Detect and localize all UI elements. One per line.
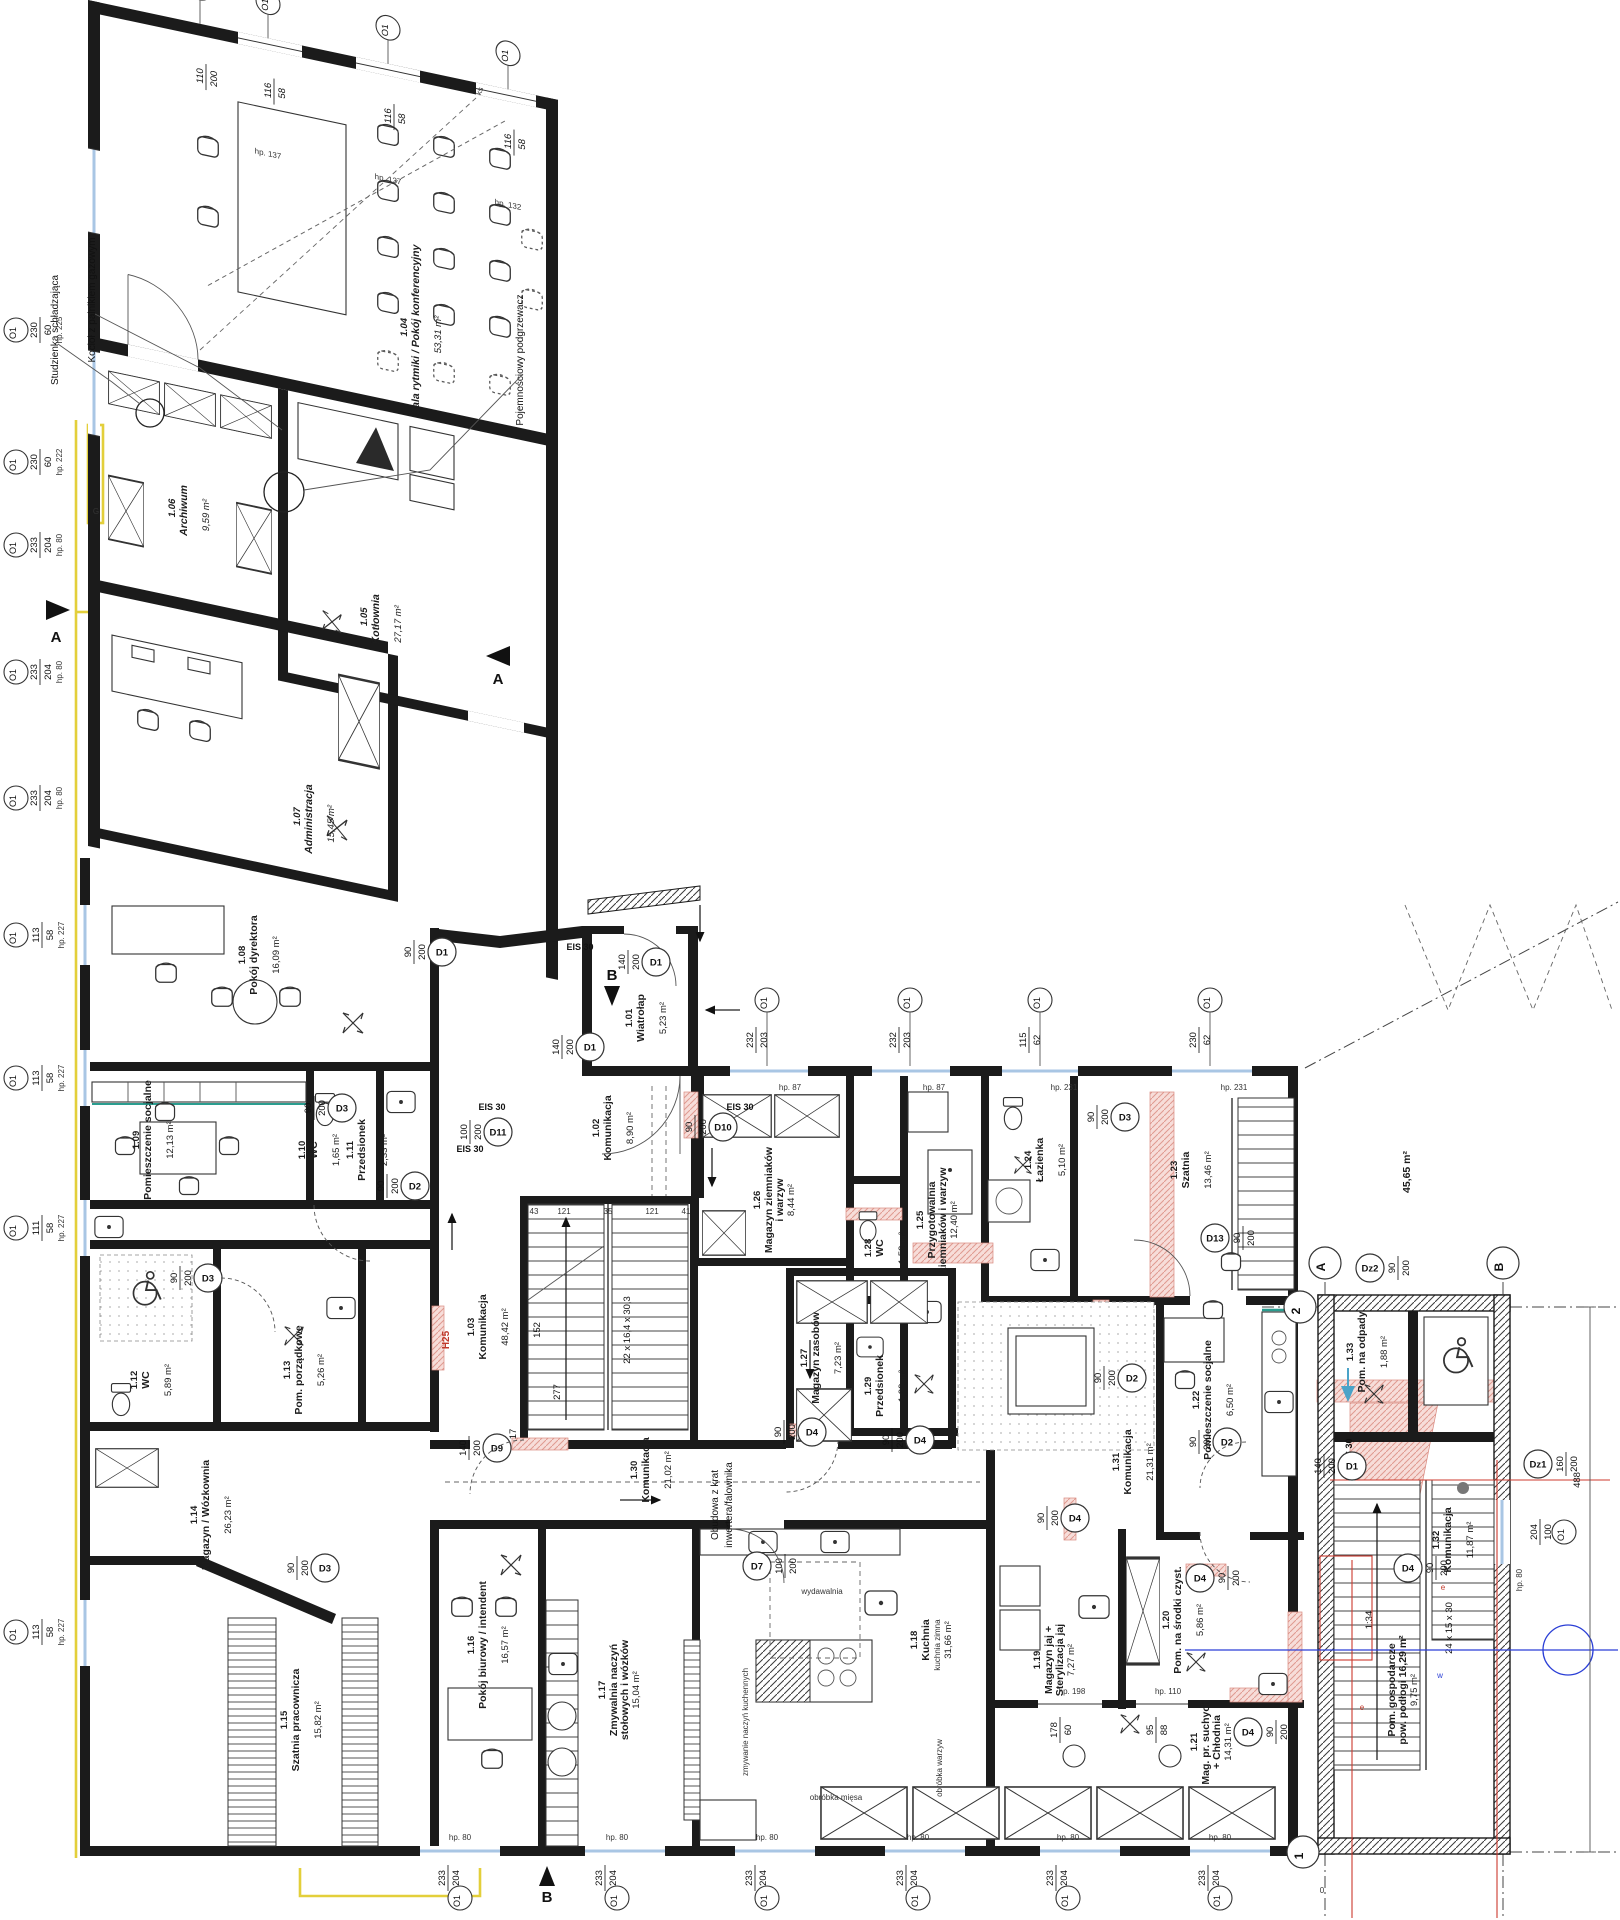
svg-text:B: B <box>607 967 618 984</box>
window-dimension: O1204100hp. 80 <box>1515 1519 1576 1591</box>
area-45-65: 45,65 m² <box>1401 1150 1413 1193</box>
svg-text:200: 200 <box>209 70 220 88</box>
svg-text:113: 113 <box>31 1624 42 1639</box>
svg-text:1.18: 1.18 <box>909 1631 920 1650</box>
svg-text:1,65 m²: 1,65 m² <box>331 1134 342 1166</box>
svg-text:204: 204 <box>43 790 54 806</box>
svg-text:Łazienka: Łazienka <box>1034 1138 1046 1183</box>
svg-text:e: e <box>1360 1703 1365 1712</box>
svg-text:200: 200 <box>788 1558 799 1574</box>
door-bubble: D390200 <box>1086 1103 1139 1131</box>
svg-text:Komunikacja: Komunikacja <box>1122 1429 1134 1495</box>
svg-text:D11: D11 <box>490 1128 508 1139</box>
svg-text:O1: O1 <box>8 795 18 807</box>
svg-text:111: 111 <box>31 1221 42 1235</box>
svg-text:i warzyw: i warzyw <box>774 1178 786 1222</box>
svg-text:1,90 m²: 1,90 m² <box>897 1370 908 1402</box>
svg-text:EIS 30: EIS 30 <box>566 942 593 952</box>
svg-text:1.32: 1.32 <box>1431 1531 1442 1550</box>
svg-text:5,26 m²: 5,26 m² <box>316 1354 327 1386</box>
svg-text:O1: O1 <box>759 1895 769 1907</box>
svg-text:O1: O1 <box>1060 1895 1070 1907</box>
svg-text:1.25: 1.25 <box>915 1210 926 1229</box>
svg-text:O1: O1 <box>759 997 769 1009</box>
svg-text:O1: O1 <box>8 1075 18 1087</box>
svg-text:11,87 m²: 11,87 m² <box>1465 1522 1476 1559</box>
window-dimension: O1233204hp. 80 <box>4 532 64 558</box>
svg-text:O1: O1 <box>609 1895 619 1907</box>
svg-text:Komunikacja: Komunikacja <box>640 1437 652 1503</box>
svg-text:1.08: 1.08 <box>237 946 248 965</box>
svg-text:A: A <box>493 671 504 688</box>
svg-text:1,53 m²: 1,53 m² <box>897 1232 908 1264</box>
svg-text:17: 17 <box>508 1429 519 1440</box>
svg-text:100: 100 <box>1543 1524 1554 1540</box>
svg-text:0: 0 <box>1320 1886 1325 1895</box>
svg-text:D2: D2 <box>1126 1374 1138 1385</box>
svg-text:D1: D1 <box>1346 1462 1359 1473</box>
svg-text:62: 62 <box>1032 1035 1043 1046</box>
svg-text:Administracja: Administracja <box>303 783 315 855</box>
svg-text:200: 200 <box>300 1560 311 1576</box>
svg-text:5,89 m²: 5,89 m² <box>163 1364 174 1396</box>
window-dimension: O111358hp. 227 <box>4 921 66 948</box>
svg-text:D4: D4 <box>1242 1728 1255 1739</box>
annotation-podgrzewacz: Pojemnościowy podgrzewacz <box>515 294 526 425</box>
svg-text:90: 90 <box>1232 1233 1243 1244</box>
svg-text:hp. 198: hp. 198 <box>1059 1687 1086 1696</box>
svg-text:200: 200 <box>1231 1570 1242 1586</box>
svg-text:1:34: 1:34 <box>1364 1611 1375 1630</box>
svg-text:hp. 87: hp. 87 <box>923 1083 946 1092</box>
svg-text:90: 90 <box>1036 1513 1047 1524</box>
window-dimension: O123060hp. 222 <box>4 448 64 475</box>
svg-text:233: 233 <box>29 790 40 806</box>
svg-text:90: 90 <box>403 947 414 958</box>
svg-text:Sterylizacja jaj: Sterylizacja jaj <box>1054 1624 1066 1696</box>
svg-text:1.31: 1.31 <box>1111 1452 1122 1471</box>
svg-text:1.14: 1.14 <box>189 1505 200 1524</box>
svg-text:1.28: 1.28 <box>863 1239 874 1258</box>
svg-text:5,10 m²: 5,10 m² <box>1057 1144 1068 1176</box>
window-dimension: O111158hp. 227 <box>4 1214 66 1241</box>
svg-text:1.11: 1.11 <box>345 1140 356 1159</box>
svg-text:200: 200 <box>1107 1370 1118 1386</box>
svg-text:90: 90 <box>1086 1112 1097 1123</box>
svg-text:90: 90 <box>169 1273 180 1284</box>
svg-text:58: 58 <box>397 112 408 125</box>
svg-text:Przedsionek: Przedsionek <box>874 1355 886 1417</box>
svg-text:230: 230 <box>29 322 40 338</box>
svg-text:hp. 231: hp. 231 <box>1051 1083 1078 1092</box>
svg-text:inwertera/falownika: inwertera/falownika <box>724 1462 735 1548</box>
svg-text:O1: O1 <box>452 1895 462 1907</box>
window-dimension: 17860hp. 198 <box>1049 1687 1086 1767</box>
svg-text:8,90 m²: 8,90 m² <box>625 1112 636 1144</box>
svg-text:Pom. porządkowe: Pom. porządkowe <box>293 1325 305 1414</box>
svg-text:1.10: 1.10 <box>297 1141 308 1160</box>
svg-text:A: A <box>51 629 62 646</box>
window-dimension: O111562hp. 231 <box>1018 988 1078 1092</box>
svg-text:Magazyn zasobów: Magazyn zasobów <box>810 1311 822 1403</box>
room-label: 1.07Administracja 15,45 m² <box>292 781 337 860</box>
svg-text:16,57 m²: 16,57 m² <box>500 1626 511 1664</box>
svg-text:wydawalnia: wydawalnia <box>800 1587 843 1596</box>
window-dimension: O1233204hp. 80 <box>744 1833 779 1910</box>
svg-text:58: 58 <box>45 1223 56 1234</box>
svg-text:26,23 m²: 26,23 m² <box>223 1496 234 1534</box>
svg-text:e: e <box>1441 1583 1446 1592</box>
window-dimension: O1233204hp. 80 <box>437 1833 472 1910</box>
door-bubble: D490200 <box>1036 1504 1089 1532</box>
svg-text:90: 90 <box>684 1122 695 1133</box>
svg-text:5,23 m²: 5,23 m² <box>658 1002 669 1034</box>
svg-text:200: 200 <box>317 1100 328 1116</box>
dimension-488: 488 <box>1572 1472 1583 1488</box>
svg-text:204: 204 <box>43 537 54 553</box>
svg-text:233: 233 <box>1197 1870 1208 1886</box>
door-bubble: D290200 <box>1188 1428 1241 1456</box>
svg-text:233: 233 <box>29 664 40 680</box>
svg-text:200: 200 <box>698 1119 709 1135</box>
svg-text:200: 200 <box>1202 1434 1213 1450</box>
svg-text:hp. 227: hp. 227 <box>57 1214 66 1241</box>
svg-text:203: 203 <box>902 1032 913 1048</box>
svg-text:90: 90 <box>303 1103 314 1114</box>
svg-text:hp. 80: hp. 80 <box>1209 1833 1232 1842</box>
svg-text:90: 90 <box>773 1427 784 1438</box>
svg-text:O1: O1 <box>1556 1529 1566 1541</box>
svg-text:1.19: 1.19 <box>1032 1651 1043 1670</box>
window-dimension: O1 11658 hp. 137 <box>375 13 408 188</box>
svg-text:O1: O1 <box>380 23 390 37</box>
svg-text:O1: O1 <box>500 49 510 63</box>
svg-text:178: 178 <box>1049 1722 1060 1738</box>
svg-text:pow. podłogi 16,29 m²: pow. podłogi 16,29 m² <box>1397 1635 1409 1745</box>
svg-text:140: 140 <box>1313 1458 1324 1474</box>
svg-text:233: 233 <box>1045 1870 1056 1886</box>
room-label: 1.06Archiwum 9,59 m² <box>167 481 212 541</box>
svg-text:H25: H25 <box>441 1330 452 1349</box>
svg-text:Kotłownia: Kotłownia <box>370 593 382 646</box>
svg-text:1.33: 1.33 <box>1345 1343 1356 1362</box>
svg-text:1.05: 1.05 <box>359 606 370 627</box>
window-dimension: O1232203hp. 87 <box>888 988 946 1092</box>
svg-text:D4: D4 <box>1069 1514 1082 1525</box>
window-dimension: O111358hp. 227 <box>4 1064 66 1091</box>
svg-text:hp. 80: hp. 80 <box>756 1833 779 1842</box>
svg-text:233: 233 <box>594 1870 605 1886</box>
svg-text:2,33 m²: 2,33 m² <box>379 1134 390 1166</box>
svg-text:233: 233 <box>744 1870 755 1886</box>
door-bubble: D7100200 <box>743 1552 799 1580</box>
svg-text:EIS 30: EIS 30 <box>456 1144 483 1154</box>
svg-text:204: 204 <box>1211 1870 1222 1886</box>
door-bubble: D390200 <box>286 1554 339 1582</box>
svg-text:Pomieszczenie socjalne: Pomieszczenie socjalne <box>142 1080 154 1200</box>
svg-text:7,27 m²: 7,27 m² <box>1066 1644 1077 1676</box>
door-bubble: Dz290200 <box>1356 1254 1412 1282</box>
svg-text:Wiatrołap: Wiatrołap <box>635 994 647 1042</box>
annex-stair-spec: 24 x 15 x 30 <box>1444 1602 1455 1654</box>
svg-text:Sala rytmiki / Pokój konferenc: Sala rytmiki / Pokój konferencyjny <box>410 243 422 416</box>
svg-text:1.24: 1.24 <box>1023 1150 1034 1169</box>
svg-text:WC: WC <box>308 1141 320 1159</box>
svg-text:90: 90 <box>286 1563 297 1574</box>
svg-text:232: 232 <box>745 1032 756 1048</box>
svg-text:WC: WC <box>874 1239 886 1257</box>
svg-text:60: 60 <box>43 457 54 468</box>
svg-text:G: G <box>93 507 99 516</box>
svg-text:200: 200 <box>183 1270 194 1286</box>
svg-text:58: 58 <box>45 930 56 941</box>
svg-text:200: 200 <box>787 1424 798 1440</box>
svg-text:D4: D4 <box>806 1428 819 1439</box>
svg-text:53,31 m²: 53,31 m² <box>433 314 444 355</box>
svg-text:D4: D4 <box>1194 1574 1207 1585</box>
door-bubble: D190200 <box>403 938 456 966</box>
svg-text:kuchnia zimna: kuchnia zimna <box>933 1619 942 1671</box>
svg-text:230: 230 <box>29 454 40 470</box>
svg-text:D4: D4 <box>914 1436 927 1447</box>
svg-text:277: 277 <box>552 1384 563 1400</box>
svg-text:hp. 80: hp. 80 <box>1515 1568 1524 1591</box>
svg-text:1.07: 1.07 <box>292 806 303 827</box>
door-bubble: D11100200 <box>459 1118 512 1146</box>
svg-text:95: 95 <box>1145 1725 1156 1736</box>
svg-text:58: 58 <box>517 138 528 151</box>
svg-text:D3: D3 <box>202 1274 214 1285</box>
svg-text:hp. 80: hp. 80 <box>907 1833 930 1842</box>
svg-text:hp. 80: hp. 80 <box>1057 1833 1080 1842</box>
svg-text:90: 90 <box>1387 1263 1398 1274</box>
svg-text:233: 233 <box>895 1870 906 1886</box>
svg-text:D4: D4 <box>1402 1564 1415 1575</box>
svg-text:D10: D10 <box>714 1123 731 1134</box>
svg-text:58: 58 <box>277 87 288 100</box>
svg-text:200: 200 <box>1100 1109 1111 1125</box>
svg-text:hp. 225: hp. 225 <box>55 316 64 343</box>
svg-text:Szatnia: Szatnia <box>1180 1151 1192 1188</box>
svg-text:D3: D3 <box>1119 1113 1131 1124</box>
svg-text:200: 200 <box>1439 1560 1450 1576</box>
svg-text:hp. 227: hp. 227 <box>57 1618 66 1645</box>
svg-text:hp. 222: hp. 222 <box>55 448 64 475</box>
window-dimension: O1233204hp. 80 <box>4 659 64 685</box>
svg-text:200: 200 <box>1050 1510 1061 1526</box>
svg-text:12,40 m²: 12,40 m² <box>949 1201 960 1239</box>
svg-text:Pokój biurowy / intendent: Pokój biurowy / intendent <box>477 1581 489 1709</box>
window-dimension: O1233204hp. 80 <box>4 785 64 811</box>
svg-text:hp. 231: hp. 231 <box>1221 1083 1248 1092</box>
svg-text:48,42 m²: 48,42 m² <box>500 1308 511 1346</box>
svg-text:90: 90 <box>1425 1563 1436 1574</box>
svg-text:stołowych i wózków: stołowych i wózków <box>619 1639 631 1740</box>
svg-text:1.09: 1.09 <box>131 1131 142 1150</box>
floor-plan-canvas: 1.04Sala rytmiki / Pokój konferencyjny 5… <box>0 0 1620 1920</box>
svg-text:115: 115 <box>1018 1032 1029 1047</box>
svg-text:113: 113 <box>31 927 42 942</box>
svg-text:5,86 m²: 5,86 m² <box>1195 1604 1206 1636</box>
svg-text:15,04 m²: 15,04 m² <box>631 1671 642 1709</box>
svg-text:160: 160 <box>1555 1456 1566 1472</box>
svg-text:15,82 m²: 15,82 m² <box>313 1701 324 1739</box>
floor-plan-svg: 1.04Sala rytmiki / Pokój konferencyjny 5… <box>0 0 1620 1920</box>
svg-text:58: 58 <box>45 1073 56 1084</box>
svg-text:152: 152 <box>532 1322 543 1338</box>
svg-text:1.15: 1.15 <box>279 1710 290 1729</box>
svg-text:90: 90 <box>1093 1373 1104 1384</box>
svg-text:41: 41 <box>682 1207 691 1216</box>
svg-text:D1: D1 <box>436 948 449 959</box>
svg-text:O1: O1 <box>260 0 270 12</box>
svg-text:+ Chłodnia: + Chłodnia <box>1211 1715 1223 1769</box>
svg-text:O1: O1 <box>1032 997 1042 1009</box>
admin-furniture <box>112 627 380 847</box>
svg-text:15,45 m²: 15,45 m² <box>326 803 337 844</box>
svg-text:1.16: 1.16 <box>466 1636 477 1655</box>
window-dimension: O111358hp. 227 <box>4 1618 66 1645</box>
svg-text:O1: O1 <box>8 1629 18 1641</box>
svg-text:204: 204 <box>1059 1870 1070 1886</box>
svg-text:62: 62 <box>1202 1035 1213 1046</box>
window-dimension: O1233204hp. 80 <box>1045 1833 1080 1910</box>
svg-text:204: 204 <box>451 1870 462 1886</box>
svg-text:1.30: 1.30 <box>629 1461 640 1480</box>
svg-text:B: B <box>1492 1262 1506 1271</box>
grid-lines <box>1262 902 1618 1918</box>
svg-text:D2: D2 <box>409 1182 421 1193</box>
svg-text:7,23 m²: 7,23 m² <box>833 1342 844 1374</box>
svg-text:43: 43 <box>530 1207 539 1216</box>
svg-text:Magazyn / Wózkownia: Magazyn / Wózkownia <box>200 1460 212 1570</box>
svg-text:hp. 80: hp. 80 <box>606 1833 629 1842</box>
svg-text:90: 90 <box>881 1435 892 1446</box>
svg-text:hp. 80: hp. 80 <box>449 1833 472 1842</box>
wing-group: 1.04Sala rytmiki / Pokój konferencyjny 5… <box>88 0 558 980</box>
svg-text:200: 200 <box>473 1124 484 1140</box>
svg-text:hp. 87: hp. 87 <box>779 1083 802 1092</box>
svg-text:204: 204 <box>909 1870 920 1886</box>
svg-text:9,59 m²: 9,59 m² <box>201 497 212 532</box>
svg-text:204: 204 <box>608 1870 619 1886</box>
window-dimension: O1 11658 hp. 132 <box>495 38 528 213</box>
svg-text:zmywanie naczyń kuchennych: zmywanie naczyń kuchennych <box>741 1668 750 1776</box>
svg-text:hp. 110: hp. 110 <box>1155 1687 1182 1696</box>
svg-text:90: 90 <box>1265 1727 1276 1738</box>
svg-text:233: 233 <box>437 1870 448 1886</box>
svg-text:200: 200 <box>631 954 642 970</box>
svg-text:O1: O1 <box>8 542 18 554</box>
svg-text:1.26: 1.26 <box>752 1191 763 1210</box>
svg-text:Pom. na środki czyst.: Pom. na środki czyst. <box>1172 1566 1184 1673</box>
svg-text:110: 110 <box>195 67 206 84</box>
svg-text:200: 200 <box>1246 1230 1257 1246</box>
svg-text:200: 200 <box>1327 1458 1338 1474</box>
svg-text:16,09 m²: 16,09 m² <box>271 936 282 974</box>
door-dimension: O1 110200 <box>188 0 220 93</box>
svg-text:1.12: 1.12 <box>129 1371 140 1390</box>
svg-text:O1: O1 <box>8 1225 18 1237</box>
svg-text:60: 60 <box>1063 1725 1074 1736</box>
main-staircase: 43 121 35 121 41 152 277 17 22 x 16,4 x … <box>508 1086 691 1439</box>
svg-text:230: 230 <box>1188 1032 1199 1048</box>
svg-text:204: 204 <box>758 1870 769 1886</box>
svg-text:200: 200 <box>1569 1456 1580 1472</box>
svg-text:1.06: 1.06 <box>167 498 178 519</box>
svg-text:D3: D3 <box>336 1104 348 1115</box>
svg-text:1.03: 1.03 <box>466 1318 477 1337</box>
svg-text:D2: D2 <box>1221 1438 1233 1449</box>
svg-text:140: 140 <box>617 954 628 970</box>
window-dimension: O1232203hp. 87 <box>745 988 802 1092</box>
svg-text:31,66 m²: 31,66 m² <box>943 1621 954 1659</box>
svg-text:200: 200 <box>1401 1260 1412 1276</box>
conference-furniture <box>198 84 543 402</box>
svg-text:1: 1 <box>1292 1852 1306 1859</box>
window-dimension: O1233204hp. 80 <box>1197 1833 1232 1910</box>
svg-text:EIS 30: EIS 30 <box>726 1102 753 1112</box>
svg-text:D1: D1 <box>650 958 663 969</box>
svg-text:200: 200 <box>895 1432 906 1448</box>
svg-text:2: 2 <box>1289 1307 1303 1314</box>
svg-text:121: 121 <box>557 1207 571 1216</box>
svg-text:100: 100 <box>459 1124 470 1140</box>
svg-text:hp. 227: hp. 227 <box>57 921 66 948</box>
svg-text:1.02: 1.02 <box>591 1119 602 1138</box>
window-dimension: O123062hp. 231 <box>1188 988 1248 1092</box>
svg-text:Pom. na odpady: Pom. na odpady <box>1356 1311 1368 1392</box>
svg-text:O1: O1 <box>8 459 18 471</box>
svg-text:200: 200 <box>1279 1724 1290 1740</box>
svg-text:90: 90 <box>376 1181 387 1192</box>
svg-text:Szatnia pracownicza: Szatnia pracownicza <box>290 1668 302 1771</box>
archive-shelves <box>108 371 271 574</box>
svg-text:58: 58 <box>45 1627 56 1638</box>
window-dimension: O1233204hp. 80 <box>895 1833 930 1910</box>
svg-text:203: 203 <box>759 1032 770 1048</box>
svg-text:Archiwum: Archiwum <box>178 484 190 537</box>
svg-text:Przedsionek: Przedsionek <box>356 1119 368 1181</box>
stair-spec: 22 x 16,4 x 30,3 <box>622 1296 633 1364</box>
svg-text:14,31 m²: 14,31 m² <box>1223 1723 1234 1761</box>
svg-text:D3: D3 <box>319 1564 331 1575</box>
svg-text:1.04: 1.04 <box>399 316 410 337</box>
svg-text:A: A <box>1314 1262 1328 1271</box>
svg-text:1,88 m²: 1,88 m² <box>1379 1336 1390 1368</box>
svg-text:ziemniaków i warzyw: ziemniaków i warzyw <box>937 1167 949 1273</box>
svg-text:O1: O1 <box>8 669 18 681</box>
window-dimension: O1233204hp. 80 <box>594 1833 629 1910</box>
svg-text:204: 204 <box>43 664 54 680</box>
svg-text:EIS 30: EIS 30 <box>478 1102 505 1112</box>
svg-text:21,31 m²: 21,31 m² <box>1145 1443 1156 1481</box>
entrance-porch <box>500 886 740 1076</box>
svg-text:Obudowa z krat: Obudowa z krat <box>710 1470 721 1540</box>
svg-text:Komunikacja: Komunikacja <box>477 1294 489 1360</box>
window-dimension: O123060hp. 225 <box>4 316 64 343</box>
svg-text:1.29: 1.29 <box>863 1377 874 1396</box>
svg-text:O1: O1 <box>8 932 18 944</box>
svg-text:88: 88 <box>1159 1725 1170 1736</box>
door-bubble: D490200 <box>1234 1718 1290 1746</box>
svg-text:200: 200 <box>417 944 428 960</box>
svg-text:90: 90 <box>1217 1573 1228 1584</box>
svg-text:D13: D13 <box>1206 1234 1223 1245</box>
door-bubble: D1140200 <box>551 1033 604 1061</box>
svg-text:WC: WC <box>140 1371 152 1389</box>
svg-text:116: 116 <box>503 133 514 150</box>
